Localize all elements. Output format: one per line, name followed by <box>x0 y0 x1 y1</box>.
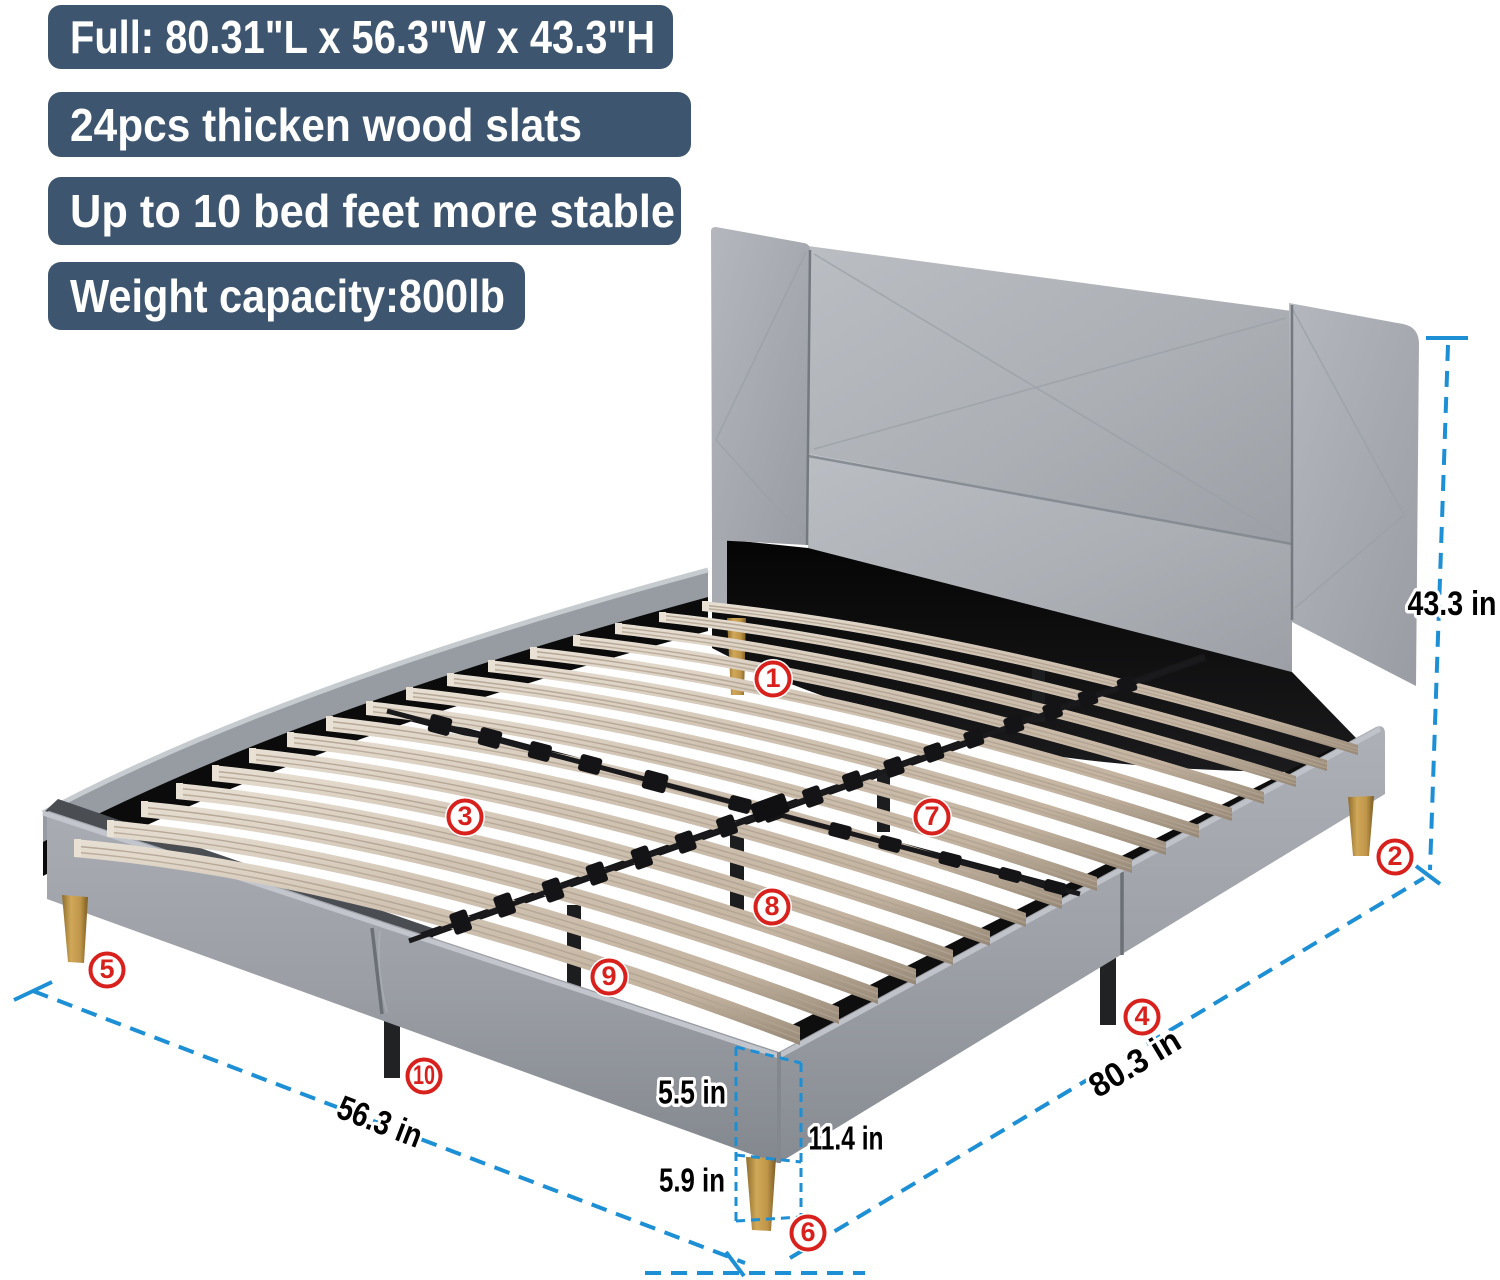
svg-text:5.9 in: 5.9 in <box>659 1162 725 1199</box>
svg-text:3: 3 <box>457 801 472 831</box>
svg-text:8: 8 <box>764 891 779 921</box>
svg-text:5: 5 <box>99 954 114 984</box>
svg-text:43.3 in: 43.3 in <box>1408 585 1497 623</box>
svg-text:Weight capacity:800lb: Weight capacity:800lb <box>70 270 505 322</box>
svg-text:Full: 80.31"L x 56.3"W x 43.3": Full: 80.31"L x 56.3"W x 43.3"H <box>70 11 655 63</box>
svg-text:6: 6 <box>800 1217 815 1247</box>
svg-text:10: 10 <box>413 1060 435 1090</box>
svg-text:24pcs thicken wood slats: 24pcs thicken wood slats <box>70 99 582 151</box>
svg-text:11.4 in: 11.4 in <box>809 1120 884 1157</box>
svg-text:2: 2 <box>1387 841 1402 871</box>
svg-text:9: 9 <box>601 961 616 991</box>
svg-text:7: 7 <box>924 801 939 831</box>
svg-text:1: 1 <box>765 663 780 693</box>
svg-text:4: 4 <box>1134 1001 1149 1031</box>
svg-text:5.5 in: 5.5 in <box>658 1074 726 1111</box>
svg-text:Up to 10 bed feet more stable: Up to 10 bed feet more stable <box>70 185 675 237</box>
